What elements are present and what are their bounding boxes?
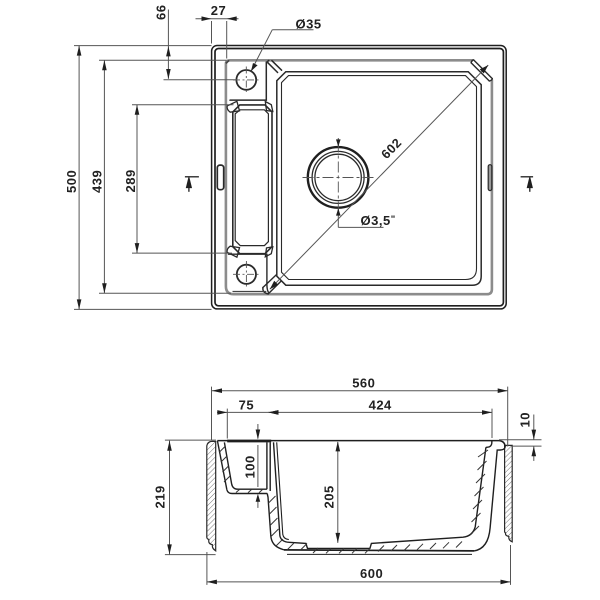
svg-text:424: 424	[369, 398, 392, 413]
svg-text:10: 10	[518, 412, 533, 427]
svg-text:75: 75	[239, 398, 254, 413]
svg-text:560: 560	[352, 375, 375, 390]
svg-text:289: 289	[123, 169, 138, 192]
svg-text:27: 27	[211, 3, 226, 18]
svg-text:439: 439	[90, 170, 105, 193]
svg-text:66: 66	[153, 5, 168, 20]
svg-text:100: 100	[243, 455, 258, 478]
svg-text:205: 205	[322, 485, 337, 508]
svg-text:500: 500	[64, 170, 79, 193]
svg-text:219: 219	[153, 485, 168, 508]
svg-text:Ø3,5": Ø3,5"	[361, 213, 396, 228]
svg-text:600: 600	[360, 566, 383, 581]
